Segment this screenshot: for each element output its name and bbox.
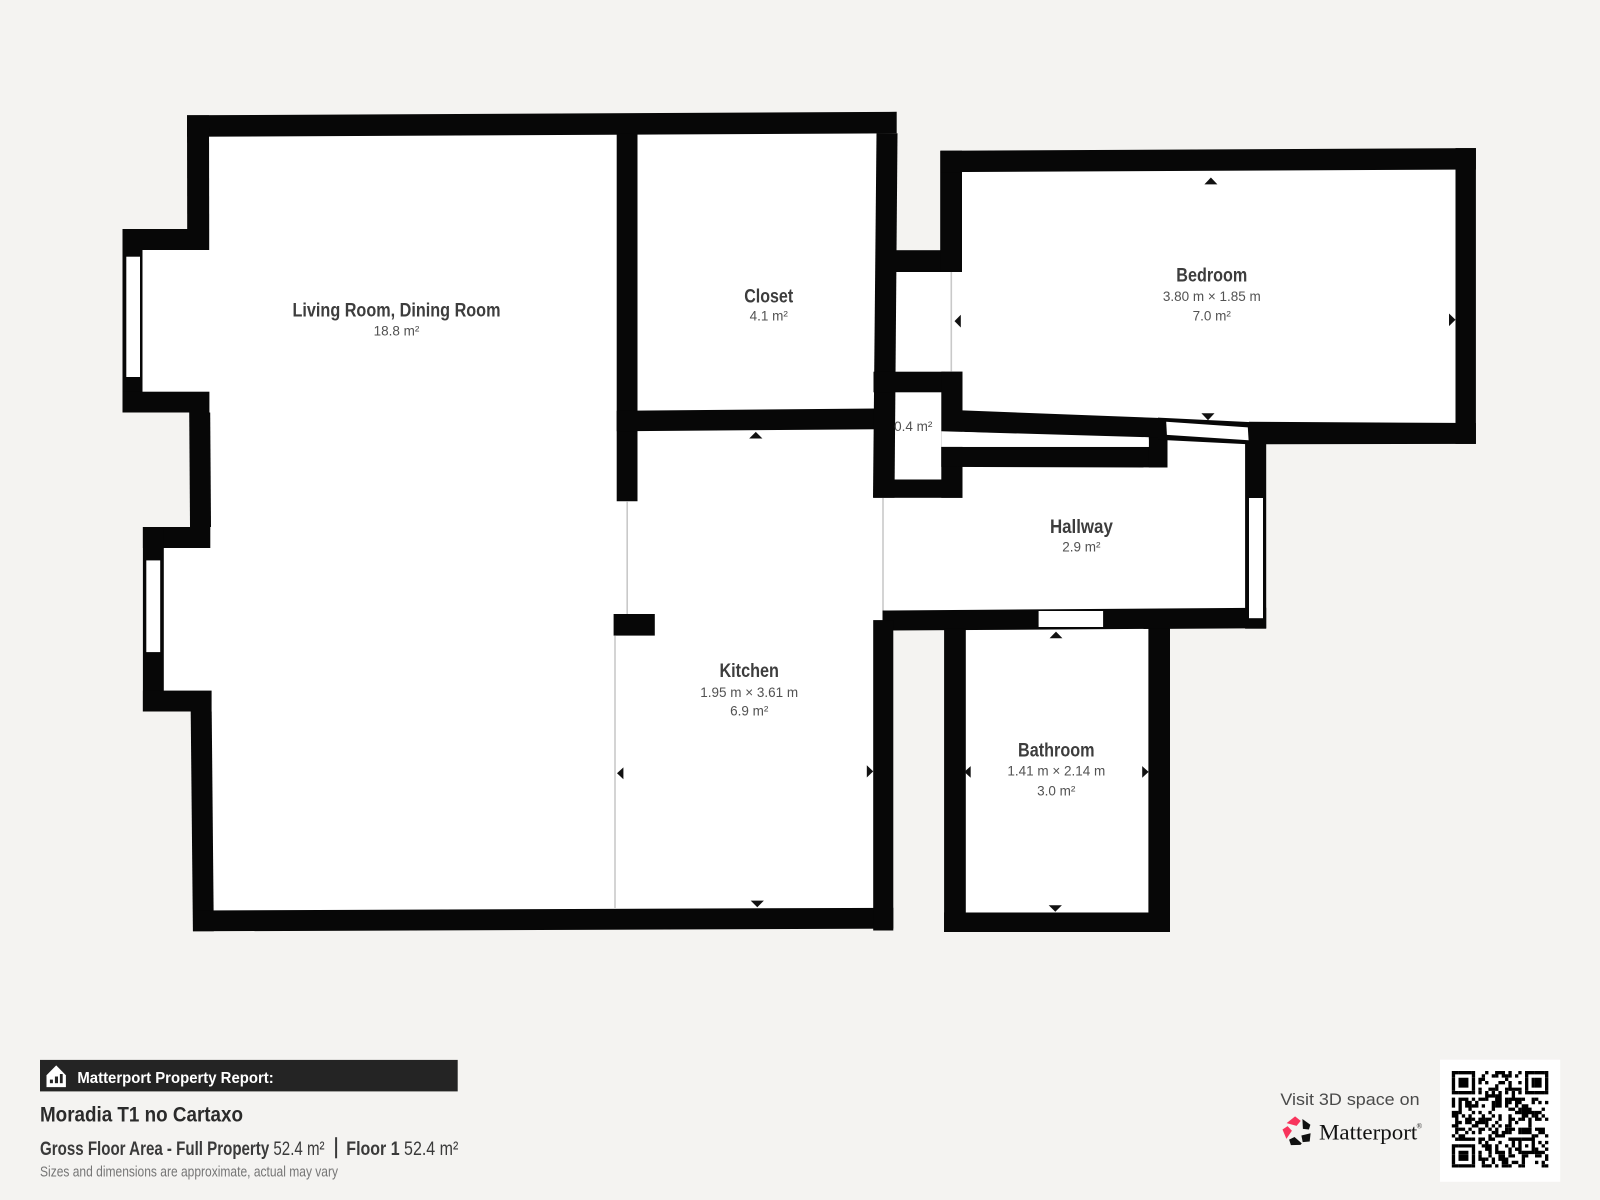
- svg-text:1.95 m × 3.61 m: 1.95 m × 3.61 m: [700, 685, 798, 700]
- svg-text:Floor 1 52.4 m²: Floor 1 52.4 m²: [346, 1139, 458, 1160]
- svg-text:Matterport: Matterport: [1319, 1120, 1417, 1145]
- svg-text:®: ®: [1417, 1122, 1423, 1131]
- svg-text:18.8 m²: 18.8 m²: [374, 324, 420, 339]
- svg-text:Visit 3D space on: Visit 3D space on: [1280, 1091, 1419, 1109]
- svg-text:3.0 m²: 3.0 m²: [1037, 784, 1076, 799]
- svg-text:2.9 m²: 2.9 m²: [1062, 540, 1101, 555]
- svg-text:1.41 m × 2.14 m: 1.41 m × 2.14 m: [1007, 764, 1105, 779]
- svg-text:Kitchen: Kitchen: [719, 660, 779, 682]
- svg-text:Gross Floor Area - Full Proper: Gross Floor Area - Full Property 52.4 m²: [40, 1139, 325, 1160]
- svg-text:Closet: Closet: [744, 285, 793, 307]
- svg-text:Sizes and dimensions are appro: Sizes and dimensions are approximate, ac…: [40, 1164, 338, 1181]
- svg-text:Bedroom: Bedroom: [1176, 265, 1247, 287]
- svg-text:Living Room, Dining Room: Living Room, Dining Room: [293, 300, 501, 322]
- svg-text:7.0 m²: 7.0 m²: [1193, 308, 1232, 323]
- svg-text:3.80 m × 1.85 m: 3.80 m × 1.85 m: [1163, 289, 1261, 304]
- svg-text:6.9 m²: 6.9 m²: [730, 704, 769, 719]
- svg-text:Bathroom: Bathroom: [1018, 740, 1095, 762]
- svg-text:Hallway: Hallway: [1050, 516, 1113, 538]
- svg-text:0.4 m²: 0.4 m²: [894, 419, 933, 434]
- svg-text:4.1 m²: 4.1 m²: [750, 308, 789, 323]
- svg-text:Moradia T1 no Cartaxo: Moradia T1 no Cartaxo: [40, 1103, 243, 1126]
- svg-text:Matterport Property Report:: Matterport Property Report:: [77, 1070, 273, 1087]
